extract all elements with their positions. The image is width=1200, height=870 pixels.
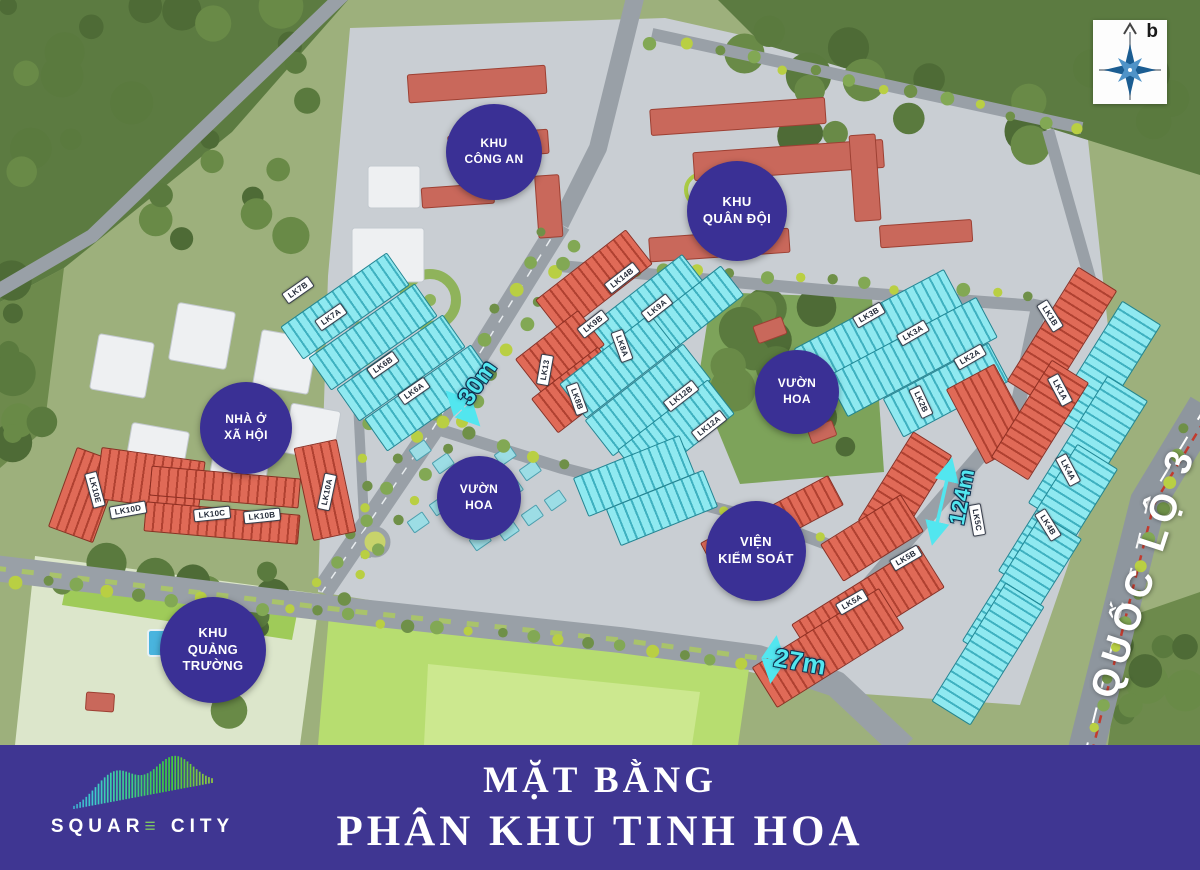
arrow-124m xyxy=(933,462,951,541)
arrow-30m xyxy=(449,394,477,423)
site-plan-map: LK10ELK10DLK10CLK10BLK10ALK7BLK7ALK6BLK6… xyxy=(0,0,1200,745)
compass-rose: b xyxy=(1093,20,1167,104)
plan-title: MẶT BẰNG PHÂN KHU TINH HOA xyxy=(0,745,1200,870)
plan-title-line2: PHÂN KHU TINH HOA xyxy=(0,807,1200,856)
measure-arrows xyxy=(0,0,1200,745)
masterplan-poster: LK10ELK10DLK10CLK10BLK10ALK7BLK7ALK6BLK6… xyxy=(0,0,1200,870)
footer-banner: SQUAR≡ CITY MẶT BẰNG PHÂN KHU TINH HOA xyxy=(0,745,1200,870)
plan-title-line1: MẶT BẰNG xyxy=(0,759,1200,802)
arrow-27m xyxy=(771,640,776,679)
north-label: b xyxy=(1146,21,1158,43)
